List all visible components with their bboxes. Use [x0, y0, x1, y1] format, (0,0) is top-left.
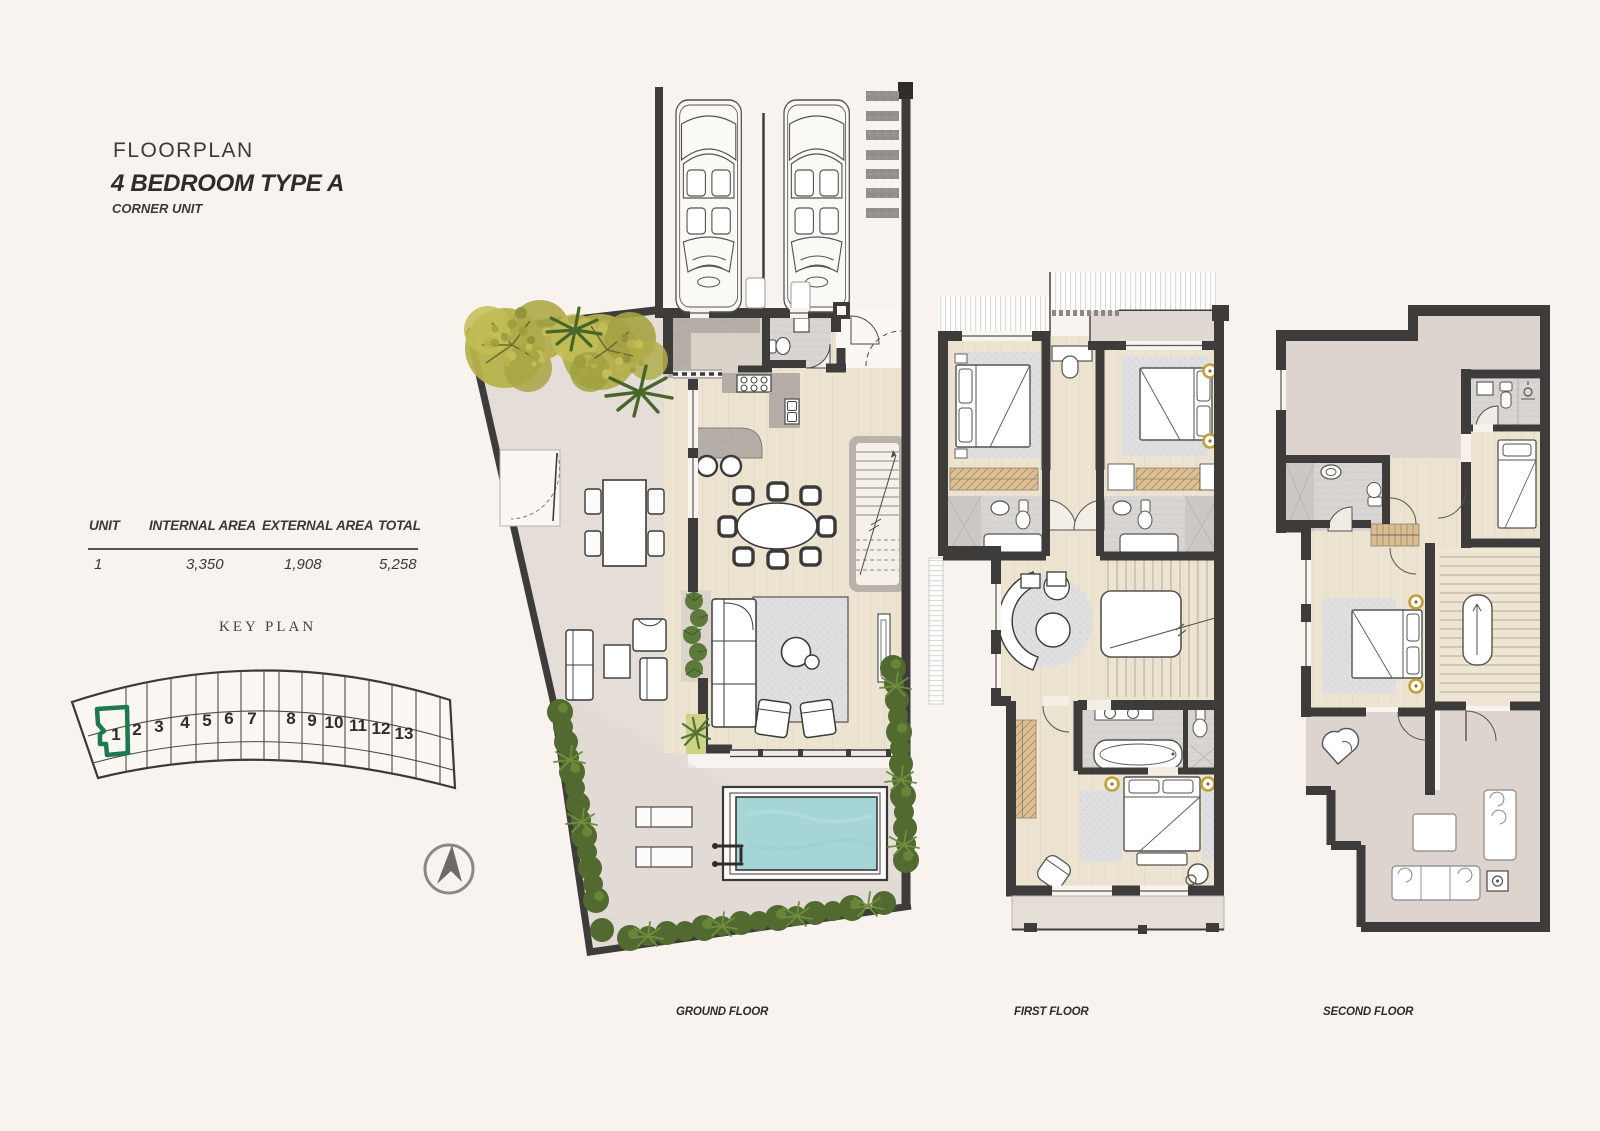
svg-text:2: 2: [132, 720, 141, 739]
svg-text:4: 4: [180, 713, 190, 732]
svg-text:3: 3: [154, 717, 163, 736]
svg-text:5: 5: [202, 711, 211, 730]
svg-text:10: 10: [325, 713, 344, 732]
svg-text:6: 6: [224, 709, 233, 728]
svg-text:11: 11: [349, 716, 367, 735]
svg-text:12: 12: [372, 719, 391, 738]
svg-text:1: 1: [111, 725, 120, 744]
svg-text:7: 7: [247, 709, 256, 728]
svg-text:9: 9: [307, 711, 316, 730]
svg-text:8: 8: [286, 709, 295, 728]
svg-text:13: 13: [395, 724, 414, 743]
